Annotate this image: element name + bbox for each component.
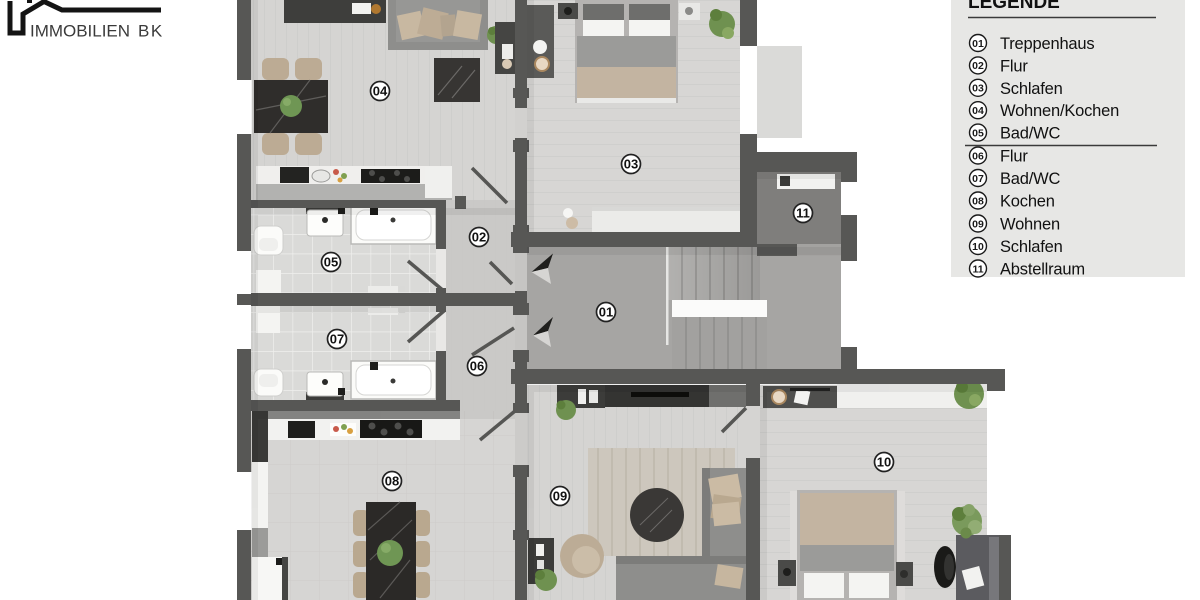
svg-text:Wohnen/Kochen: Wohnen/Kochen xyxy=(1000,102,1119,120)
svg-text:05: 05 xyxy=(972,127,984,139)
svg-text:Treppenhaus: Treppenhaus xyxy=(1000,35,1094,53)
svg-text:06: 06 xyxy=(470,359,484,374)
svg-text:04: 04 xyxy=(373,84,388,99)
svg-text:Flur: Flur xyxy=(1000,148,1028,166)
svg-text:08: 08 xyxy=(385,474,399,489)
svg-text:Abstellraum: Abstellraum xyxy=(1000,261,1085,279)
svg-text:10: 10 xyxy=(877,455,891,470)
svg-text:04: 04 xyxy=(972,105,984,117)
svg-text:06: 06 xyxy=(972,150,984,162)
svg-text:Schlafen: Schlafen xyxy=(1000,238,1063,256)
svg-text:09: 09 xyxy=(972,218,984,230)
svg-text:IMMOBILIEN: IMMOBILIEN xyxy=(30,22,130,41)
svg-text:02: 02 xyxy=(472,230,486,245)
svg-text:07: 07 xyxy=(972,173,984,185)
svg-text:07: 07 xyxy=(330,332,344,347)
svg-text:Wohnen: Wohnen xyxy=(1000,216,1060,234)
svg-text:Schlafen: Schlafen xyxy=(1000,80,1063,98)
svg-text:Flur: Flur xyxy=(1000,57,1028,75)
svg-text:03: 03 xyxy=(972,83,984,95)
svg-text:09: 09 xyxy=(553,489,567,504)
svg-text:Kochen: Kochen xyxy=(1000,193,1055,211)
svg-text:BK: BK xyxy=(138,22,164,41)
svg-text:08: 08 xyxy=(972,195,984,207)
svg-text:LEGENDE: LEGENDE xyxy=(968,0,1060,13)
svg-text:11: 11 xyxy=(796,206,810,221)
svg-text:03: 03 xyxy=(624,157,638,172)
svg-text:11: 11 xyxy=(972,263,983,275)
svg-text:05: 05 xyxy=(324,255,338,270)
svg-text:01: 01 xyxy=(972,38,984,50)
svg-text:Bad/WC: Bad/WC xyxy=(1000,125,1061,143)
svg-text:01: 01 xyxy=(599,305,613,320)
svg-text:Bad/WC: Bad/WC xyxy=(1000,170,1061,188)
svg-text:02: 02 xyxy=(972,60,984,72)
svg-text:10: 10 xyxy=(972,241,984,253)
